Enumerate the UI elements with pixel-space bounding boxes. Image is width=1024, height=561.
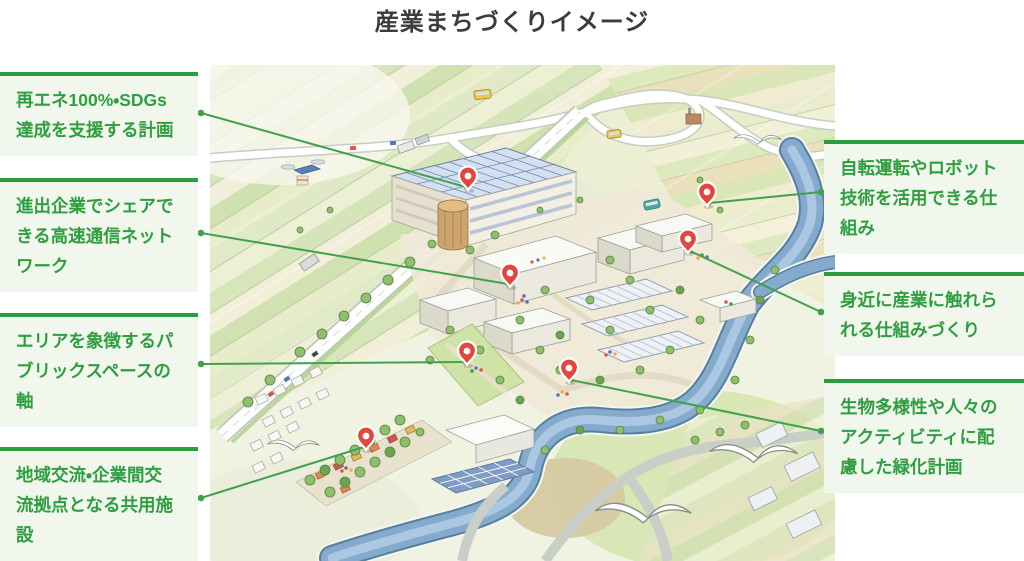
label-autonomous-robot-tech: 自転運転やロボット 技術を活用できる仕 組み [824,140,1024,254]
label-public-space-axis: エリアを象徴するパ ブリックスペースの 軸 [0,313,198,427]
label-industry-access: 身近に産業に触れら れる仕組みづくり [824,272,1024,356]
label-shared-facility-hub: 地域交流・企業間交 流拠点となる共用施 設 [0,447,198,561]
label-biodiversity-greening-plan: 生物多様性や人々の アクティビティに配 慮した緑化計画 [824,379,1024,493]
label-shared-high-speed-network: 進出企業でシェアで きる高速通信ネット ワーク [0,178,198,292]
bus [607,129,622,139]
car [350,146,356,151]
label-renewable-energy-plan: 再エネ100%・SDGs 達成を支援する計画 [0,72,198,156]
page-title: 産業まちづくりイメージ [0,2,1024,37]
bus [474,89,492,100]
illustration-map [150,45,880,561]
car [390,141,396,146]
